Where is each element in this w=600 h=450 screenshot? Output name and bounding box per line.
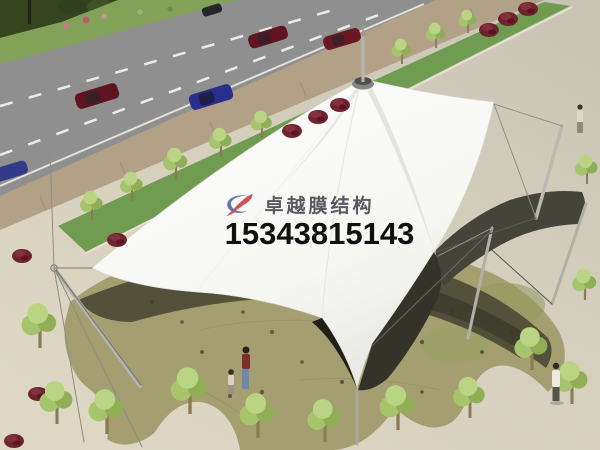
flower-bush (63, 23, 69, 29)
tree-trunk (28, 0, 31, 24)
rendering-image: 卓越膜结构 15343815143 (0, 0, 600, 450)
grass-tuft (167, 6, 172, 11)
maroon-bush (308, 110, 328, 124)
watermark: 卓越膜结构 15343815143 (222, 191, 417, 251)
flower-bush (83, 17, 90, 24)
brand-name: 卓越膜结构 (264, 191, 374, 218)
spire-mast (361, 32, 364, 82)
maroon-bush (4, 434, 24, 448)
flower-bush (101, 13, 106, 18)
maroon-bush (498, 12, 518, 26)
spire-finial (360, 31, 365, 36)
brand-row: 卓越膜结构 (222, 191, 417, 218)
maroon-bush (107, 233, 127, 247)
person-child (228, 369, 234, 394)
maroon-bush (282, 124, 302, 138)
maroon-bush (518, 2, 538, 16)
phone-number: 15343815143 (222, 218, 417, 251)
brand-swoosh-icon (222, 191, 258, 218)
maroon-bush (330, 98, 350, 112)
maroon-bush (12, 249, 32, 263)
grass-tuft (137, 9, 142, 14)
maroon-bush (479, 23, 499, 37)
